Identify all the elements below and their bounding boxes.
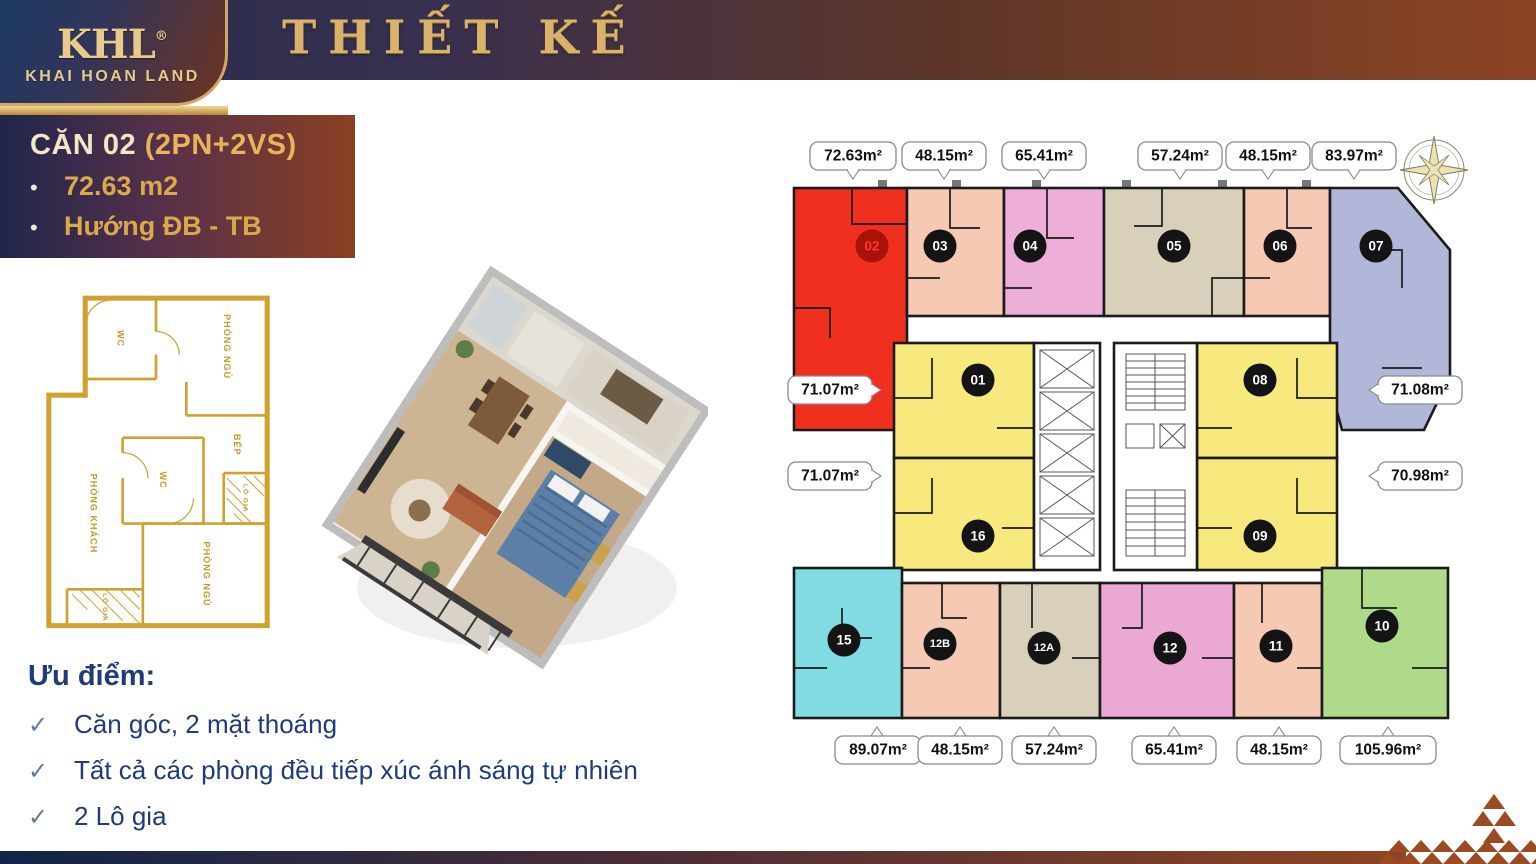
company-logo: KHL® KHAI HOAN LAND	[0, 0, 228, 106]
svg-text:07: 07	[1368, 239, 1383, 254]
svg-text:71.07m²: 71.07m²	[801, 468, 859, 485]
svg-text:WC: WC	[116, 330, 126, 347]
gold-divider	[0, 106, 228, 115]
slide: KHL® KHAI HOAN LAND THIẾT KẾ CĂN 02 (2PN…	[0, 0, 1536, 864]
floor-plan-2d: WC PHÒNG NGỦ BẾP WC LÔ GIA PHÒNG KHÁCH P…	[26, 286, 288, 658]
svg-text:PHÒNG NGỦ: PHÒNG NGỦ	[222, 314, 233, 379]
svg-text:10: 10	[1374, 619, 1389, 634]
logo-company-name: KHAI HOAN LAND	[25, 68, 200, 86]
area-labels-top: 72.63m² 48.15m² 65.41m² 57.24m² 48.15m² …	[810, 142, 1396, 179]
advantage-text: Căn góc, 2 mặt thoáng	[74, 709, 337, 740]
svg-text:48.15m²: 48.15m²	[1250, 742, 1308, 759]
plan-door-arcs	[85, 300, 193, 523]
svg-text:70.98m²: 70.98m²	[1391, 468, 1449, 485]
area-labels-left: 71.07m² 71.07m²	[788, 376, 881, 490]
unit-03	[907, 188, 1004, 316]
bullet-icon: •	[30, 215, 64, 241]
badge-unit-02: 02	[856, 230, 889, 263]
plan-outline	[49, 298, 267, 626]
badge-unit-16: 16	[962, 520, 995, 553]
svg-text:PHÒNG NGỦ: PHÒNG NGỦ	[202, 542, 213, 607]
badge-unit-04: 04	[1014, 230, 1047, 263]
svg-text:BẾP: BẾP	[232, 434, 242, 456]
svg-text:06: 06	[1272, 239, 1288, 254]
check-icon: ✓	[28, 711, 74, 740]
badge-unit-08: 08	[1244, 364, 1277, 397]
header-bar	[0, 0, 1536, 80]
svg-text:72.63m²: 72.63m²	[824, 148, 882, 165]
svg-text:57.24m²: 57.24m²	[1151, 148, 1209, 165]
area-labels-right: 71.08m² 70.98m²	[1369, 376, 1462, 490]
svg-text:15: 15	[836, 633, 852, 648]
svg-text:PHÒNG KHÁCH: PHÒNG KHÁCH	[88, 474, 99, 554]
svg-text:LÔ GIA: LÔ GIA	[101, 593, 110, 622]
badge-unit-10: 10	[1366, 610, 1399, 643]
unit-08	[1197, 343, 1337, 458]
unit-16	[894, 458, 1034, 570]
svg-text:65.41m²: 65.41m²	[1015, 148, 1073, 165]
plan-room-labels: WC PHÒNG NGỦ BẾP WC LÔ GIA PHÒNG KHÁCH P…	[88, 314, 250, 622]
unit-direction: Hướng ĐB - TB	[64, 211, 262, 242]
svg-text:65.41m²: 65.41m²	[1145, 742, 1203, 759]
badge-unit-12B: 12B	[924, 628, 957, 661]
badge-unit-05: 05	[1158, 230, 1191, 263]
svg-text:03: 03	[932, 239, 948, 254]
advantages-heading: Ưu điểm:	[28, 660, 748, 693]
badge-unit-12A: 12A	[1028, 632, 1061, 665]
unit-area: 72.63 m2	[64, 171, 178, 202]
svg-text:12: 12	[1162, 641, 1177, 656]
floor-plate: B 72.63m² 48.15m² 65.41m² 57.24m² 48.15m…	[782, 128, 1472, 788]
badge-unit-07: 07	[1360, 230, 1393, 263]
svg-text:12B: 12B	[930, 638, 950, 650]
unit-09	[1197, 458, 1337, 570]
svg-text:11: 11	[1269, 639, 1284, 654]
advantage-text: Tất cả các phòng đều tiếp xúc ánh sáng t…	[74, 755, 638, 786]
bullet-icon: •	[30, 175, 64, 201]
page-title: THIẾT KẾ	[282, 10, 638, 64]
svg-text:05: 05	[1166, 239, 1182, 254]
unit-title: CĂN 02 (2PN+2VS)	[30, 129, 355, 162]
svg-text:48.15m²: 48.15m²	[1239, 148, 1297, 165]
badge-unit-06: 06	[1264, 230, 1297, 263]
svg-text:09: 09	[1252, 529, 1267, 544]
check-icon: ✓	[28, 803, 74, 832]
badge-unit-01: 01	[962, 364, 995, 397]
render-3d	[322, 258, 708, 700]
stair-core	[1114, 343, 1197, 570]
badge-unit-03: 03	[924, 230, 957, 263]
unit-number: CĂN 02	[30, 129, 145, 161]
logo-monogram-text: KHL®	[57, 18, 168, 64]
units-bottom-row	[794, 568, 1448, 718]
svg-text:02: 02	[864, 239, 879, 254]
advantage-text: 2 Lô gia	[74, 801, 167, 832]
svg-text:16: 16	[970, 529, 986, 544]
elevator-core	[1034, 343, 1100, 570]
svg-text:08: 08	[1252, 373, 1268, 388]
unit-info-card: CĂN 02 (2PN+2VS) • 72.63 m2 • Hướng ĐB -…	[0, 115, 355, 258]
svg-text:48.15m²: 48.15m²	[931, 742, 989, 759]
check-icon: ✓	[28, 757, 74, 786]
badge-unit-09: 09	[1244, 520, 1277, 553]
plan-inner-walls	[67, 298, 267, 626]
svg-text:89.07m²: 89.07m²	[849, 742, 907, 759]
svg-text:48.15m²: 48.15m²	[915, 148, 973, 165]
unit-01	[894, 343, 1034, 458]
unit-type: (2PN+2VS)	[145, 129, 297, 161]
advantage-item: ✓ 2 Lô gia	[28, 801, 748, 832]
badge-unit-11: 11	[1260, 630, 1293, 663]
area-labels-bottom: 89.07m² 48.15m² 57.24m² 65.41m² 48.15m² …	[835, 727, 1436, 764]
svg-text:71.07m²: 71.07m²	[801, 382, 859, 399]
triangle-pattern	[1380, 788, 1536, 864]
unit-10	[1322, 568, 1448, 718]
registered-mark: ®	[155, 29, 168, 44]
advantages-section: Ưu điểm: ✓ Căn góc, 2 mặt thoáng ✓ Tất c…	[28, 660, 748, 847]
advantage-item: ✓ Căn góc, 2 mặt thoáng	[28, 709, 748, 740]
svg-text:83.97m²: 83.97m²	[1325, 148, 1383, 165]
svg-text:LÔ GIA: LÔ GIA	[241, 484, 250, 513]
footer-bar	[0, 851, 1406, 864]
svg-text:WC: WC	[158, 472, 168, 489]
svg-text:57.24m²: 57.24m²	[1025, 742, 1083, 759]
svg-text:71.08m²: 71.08m²	[1391, 382, 1449, 399]
svg-text:105.96m²: 105.96m²	[1355, 742, 1421, 759]
unit-direction-row: • Hướng ĐB - TB	[30, 211, 355, 242]
badge-unit-15: 15	[828, 624, 861, 657]
svg-text:01: 01	[970, 373, 986, 388]
badge-unit-12: 12	[1154, 632, 1187, 665]
svg-text:12A: 12A	[1034, 642, 1054, 654]
svg-text:04: 04	[1022, 239, 1038, 254]
logo-monogram: KHL	[57, 21, 155, 68]
unit-area-row: • 72.63 m2	[30, 171, 355, 202]
advantage-item: ✓ Tất cả các phòng đều tiếp xúc ánh sáng…	[28, 755, 748, 786]
